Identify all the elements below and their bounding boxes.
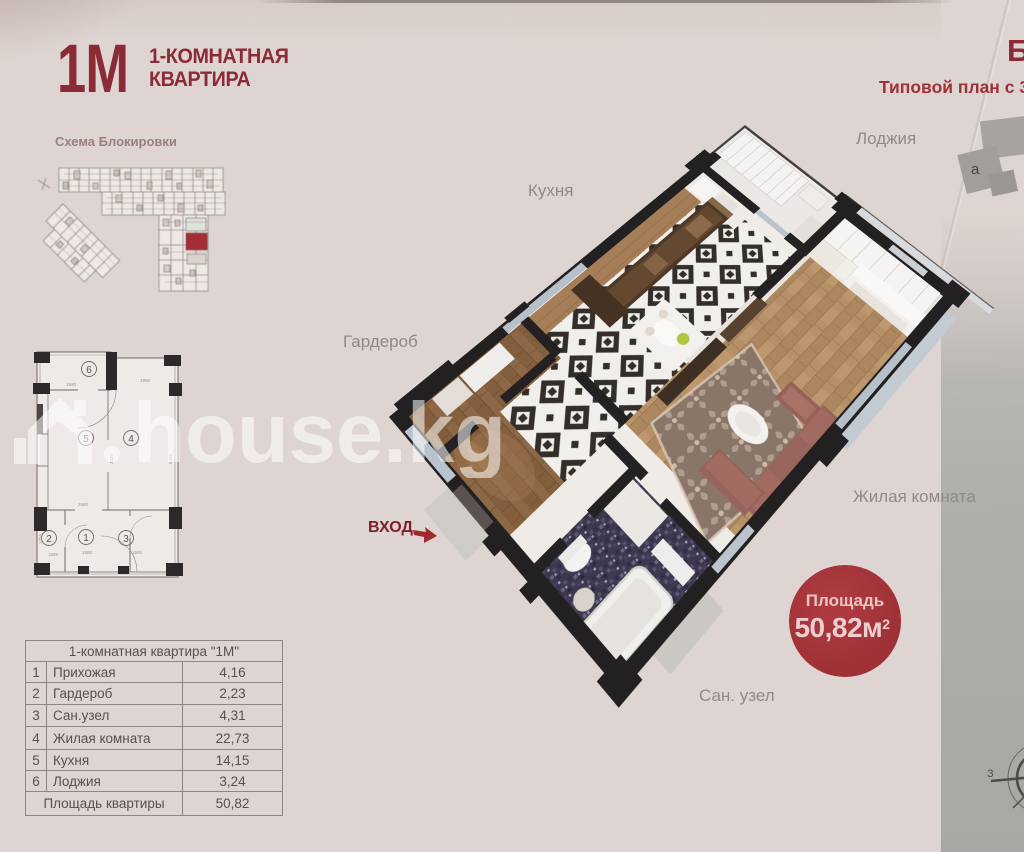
- svg-text:1595: 1595: [48, 552, 59, 557]
- svg-text:6: 6: [86, 365, 92, 376]
- svg-text:3: 3: [123, 534, 129, 545]
- svg-text:1880: 1880: [82, 550, 93, 555]
- svg-text:1590: 1590: [132, 550, 143, 555]
- svg-text:1: 1: [83, 533, 89, 544]
- svg-text:З: З: [987, 768, 994, 780]
- svg-text:2680: 2680: [78, 502, 89, 507]
- svg-text:а: а: [971, 161, 980, 178]
- svg-text:2: 2: [46, 534, 52, 545]
- svg-text:house.kg: house.kg: [133, 386, 506, 478]
- svg-text:1755: 1755: [38, 533, 43, 544]
